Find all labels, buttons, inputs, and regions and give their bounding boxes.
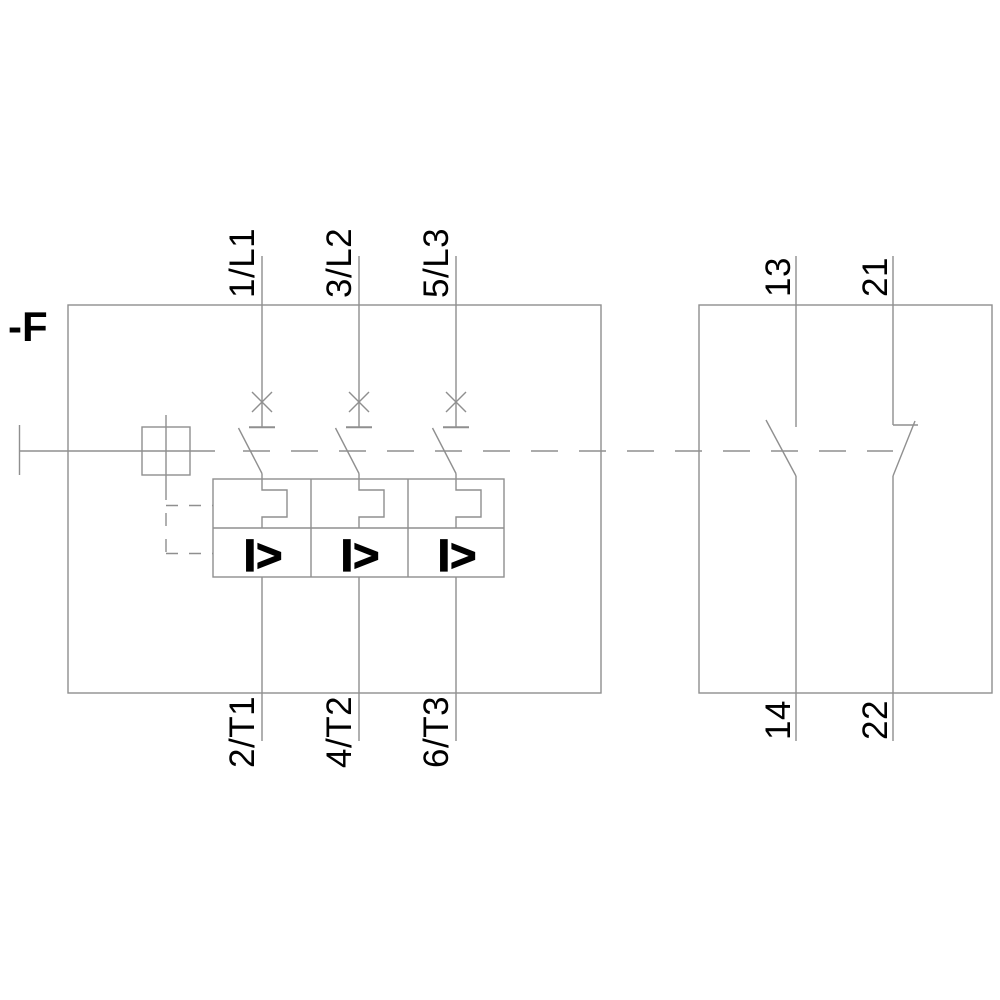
- overcurrent-release-symbol: I>: [438, 530, 477, 581]
- aux-no-bottom-terminal-label: 14: [759, 700, 798, 740]
- aux-contact-box: [699, 305, 992, 693]
- aux-nc-contact: 21 22: [856, 256, 918, 741]
- thermal-overload-release-symbol: [359, 474, 384, 529]
- thermal-overload-release-symbol: [456, 474, 481, 529]
- breaker-schematic: -F 1/L1 I> 2/T1: [0, 0, 1000, 1000]
- overcurrent-release-symbol: I>: [244, 530, 283, 581]
- device-designation-label: -F: [8, 303, 48, 350]
- overcurrent-release-symbol: I>: [341, 530, 380, 581]
- aux-no-moving-contact-arm: [766, 420, 796, 476]
- pole-2-top-terminal-label: 3/L2: [320, 228, 359, 298]
- pole-3-bottom-terminal-label: 6/T3: [417, 696, 456, 768]
- aux-nc-bottom-terminal-label: 22: [856, 700, 895, 740]
- aux-no-top-terminal-label: 13: [759, 257, 798, 297]
- thermal-overload-release-symbol: [262, 474, 287, 529]
- aux-nc-top-terminal-label: 21: [856, 257, 895, 297]
- pole-1-top-terminal-label: 1/L1: [223, 228, 262, 298]
- pole-1: 1/L1 I> 2/T1: [223, 228, 287, 768]
- main-breaker-outline: [68, 305, 601, 693]
- pole-2: 3/L2 I> 4/T2: [320, 228, 384, 768]
- schematic-canvas: -F 1/L1 I> 2/T1: [0, 0, 1000, 1000]
- aux-contact-outline: [699, 305, 992, 693]
- pole-3: 5/L3 I> 6/T3: [417, 228, 481, 768]
- manual-actuator: [20, 415, 216, 555]
- pole-1-bottom-terminal-label: 2/T1: [223, 696, 262, 768]
- aux-no-contact: 13 14: [759, 256, 798, 741]
- aux-nc-moving-contact-arm: [893, 421, 915, 476]
- pole-2-bottom-terminal-label: 4/T2: [320, 696, 359, 768]
- pole-3-top-terminal-label: 5/L3: [417, 228, 456, 298]
- main-breaker-box: [68, 305, 601, 693]
